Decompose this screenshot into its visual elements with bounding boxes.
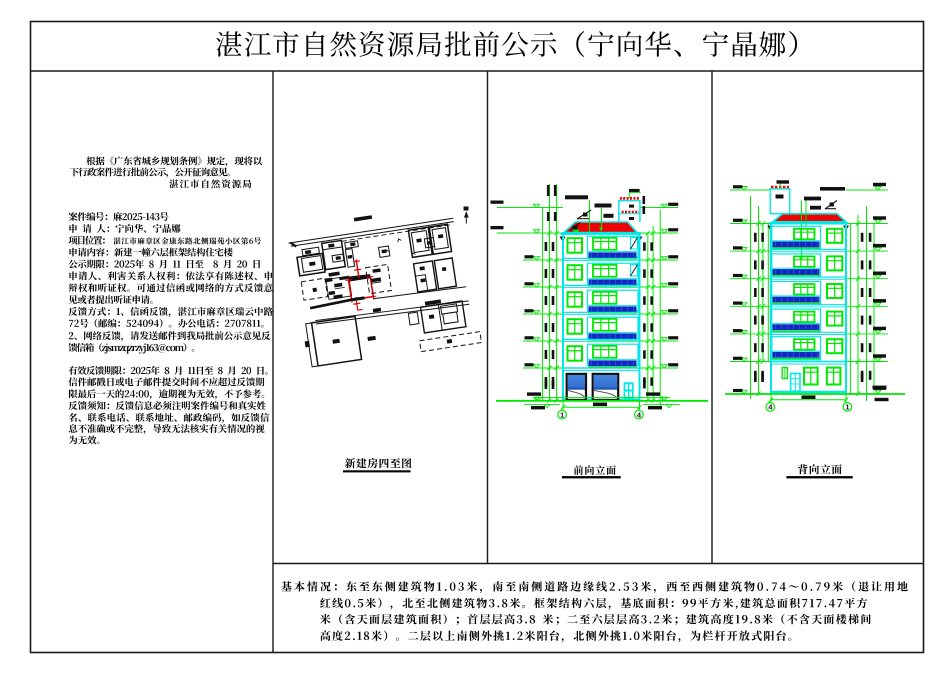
svg-text:1: 1 — [845, 403, 849, 412]
svg-text:1: 1 — [560, 410, 564, 419]
